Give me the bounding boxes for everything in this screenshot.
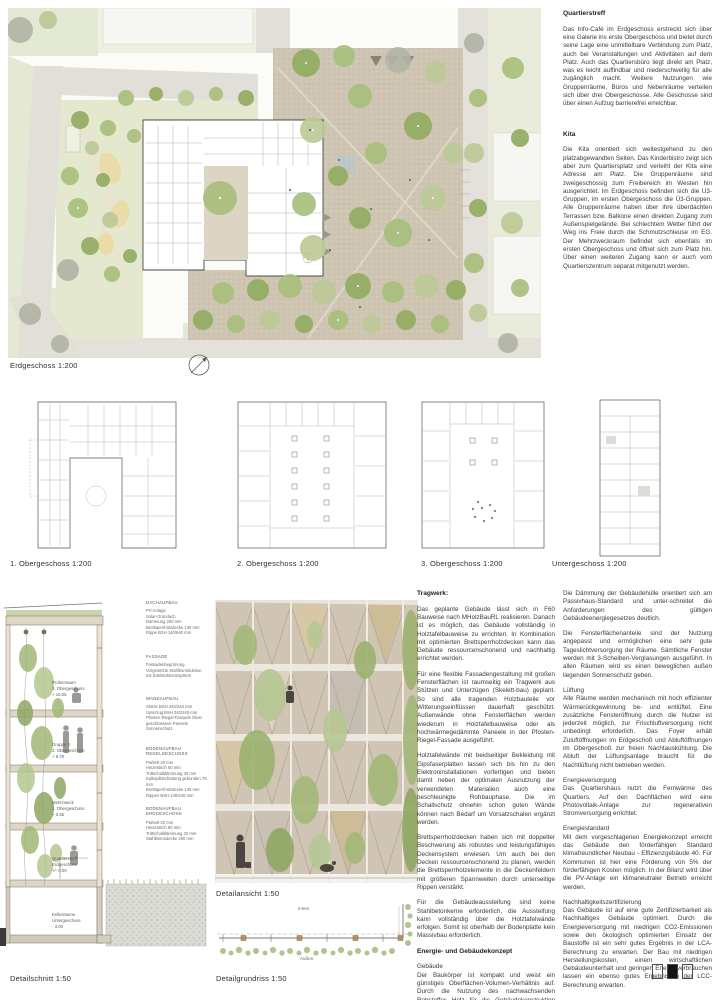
energiestandard-subheading: Energiestandard — [563, 825, 712, 833]
floor-label-2og: Gruppe 2 2. Obergeschoss + 6.70 — [52, 742, 84, 759]
sheet-position-indicator-icon — [652, 964, 693, 979]
kita-text: Die Kita orientiert sich weitestgehend z… — [563, 146, 712, 270]
right-bottom-column: Die Dämmung der Gebäudehülle orientiert … — [563, 590, 712, 997]
sheet-marker-2-active — [667, 964, 678, 979]
floor-label-3og: Probenraum 3. Obergeschoss + 10.05 — [52, 680, 84, 697]
tragwerk-heading: Tragwerk: — [417, 590, 555, 599]
energieversorgung-subheading: Energieversorgung — [563, 777, 712, 785]
plan-ug-caption: Untergeschoss 1:200 — [552, 559, 627, 568]
plan-1og-caption: 1. Obergeschoss 1:200 — [10, 559, 92, 568]
plan-2og-drawing — [236, 396, 392, 556]
label-wandaufbau: WANDAUFBAU Stütze BSH 240/240 mm Unterzu… — [146, 696, 212, 732]
hedge-greening — [220, 904, 413, 956]
quartierstreff-heading: Quartierstreff — [563, 10, 712, 19]
lueftung-text: Alle Räume werden mechanisch mit hoch ef… — [563, 695, 712, 770]
label-fassade: FASSADE Fassadenbegrünung Vorgesetzte St… — [146, 654, 212, 679]
plan-2og-caption: 2. Obergeschoss 1:200 — [237, 559, 319, 568]
label-bodenaufbau-regelgeschoss: BODENAUFBAU REGELGESCHOSS Parkett 20 mm … — [146, 746, 212, 798]
plan-3og-drawing — [420, 396, 548, 556]
fenster-text: Die Fensterflächenanteile sind der Nutzu… — [563, 630, 712, 680]
north-arrow-icon — [186, 352, 212, 378]
tragwerk-p4: Brettsperrholzdecken haben sich mit dopp… — [417, 834, 555, 892]
plan-1og-drawing — [8, 396, 180, 556]
detail-plan-drawing — [215, 898, 415, 968]
nachhaltigkeit-subheading: Nachhaltigkeitszertifizierung — [563, 899, 712, 907]
detail-plan-inner-label: Innen — [298, 906, 309, 911]
energiestandard-text: Mit dem vorgeschlagenen Energiekonzept e… — [563, 834, 712, 892]
lueftung-subheading: Lüftung — [563, 687, 712, 695]
tragwerk-p5: Für die Gebäudeaussteifung sind keine St… — [417, 899, 555, 940]
tragwerk-p1: Das geplante Gebäude lässt sich in F60 B… — [417, 606, 555, 664]
sheet-marker-1 — [652, 964, 663, 979]
plan-ug-drawing — [598, 396, 666, 560]
tragwerk-column: Tragwerk: Das geplante Gebäude lässt sic… — [417, 590, 555, 1000]
site-plan-drawing — [8, 8, 541, 358]
sheet-marker-3 — [682, 964, 693, 979]
right-top-column: Quartierstreff Das Info-Café im Erdgesch… — [563, 10, 712, 278]
label-bodenaufbau-erdgeschoss: BODENAUFBAU ERDGESCHOSS Parkett 20 mm He… — [146, 806, 212, 842]
floor-label-ug: Kellerräume Untergeschoss - 3.00 — [52, 912, 81, 929]
floor-label-1og: Mehrzweck 1. Obergeschoss + 3.35 — [52, 800, 84, 817]
floor-label-eg: Quartierstreff Erdgeschoss +/- 0.00 — [52, 856, 77, 873]
plan-3og-caption: 3. Obergeschoss 1:200 — [421, 559, 503, 568]
label-dachaufbau: DACHAUFBAU PV-Anlage Solar-Gründach Dämm… — [146, 600, 212, 636]
tragwerk-p3: Holztafelwände mit beidseitiger Bekleidu… — [417, 752, 555, 827]
detail-plan-caption: Detailgrundriss 1:50 — [216, 974, 287, 983]
daemmung-text: Die Dämmung der Gebäudehülle orientiert … — [563, 590, 712, 623]
quartierstreff-text: Das Info-Café im Erdgeschoss erstreckt s… — [563, 26, 712, 109]
kita-heading: Kita — [563, 131, 712, 140]
energiekonzept-heading: Energie- und Gebäudekonzept — [417, 948, 555, 957]
detail-plan-outer-label: Außen — [300, 956, 313, 961]
gebaeude-text: Der Baukörper ist kompakt und weist ein … — [417, 972, 555, 1000]
gebaeude-subheading: Gebäude — [417, 963, 555, 971]
energieversorgung-text: Das Quartiershaus nutzt die Fernwärme de… — [563, 785, 712, 818]
detail-view-rendering — [215, 600, 418, 883]
tragwerk-p2: Für eine flexible Fassadengestaltung mit… — [417, 671, 555, 746]
presentation-sheet: Erdgeschoss 1:200 Quartierstreff Das Inf… — [0, 0, 716, 1000]
detail-view-caption: Detailansicht 1:50 — [216, 889, 279, 898]
detail-section-caption: Detailschnitt 1:50 — [10, 974, 71, 983]
site-plan-caption: Erdgeschoss 1:200 — [10, 361, 78, 370]
